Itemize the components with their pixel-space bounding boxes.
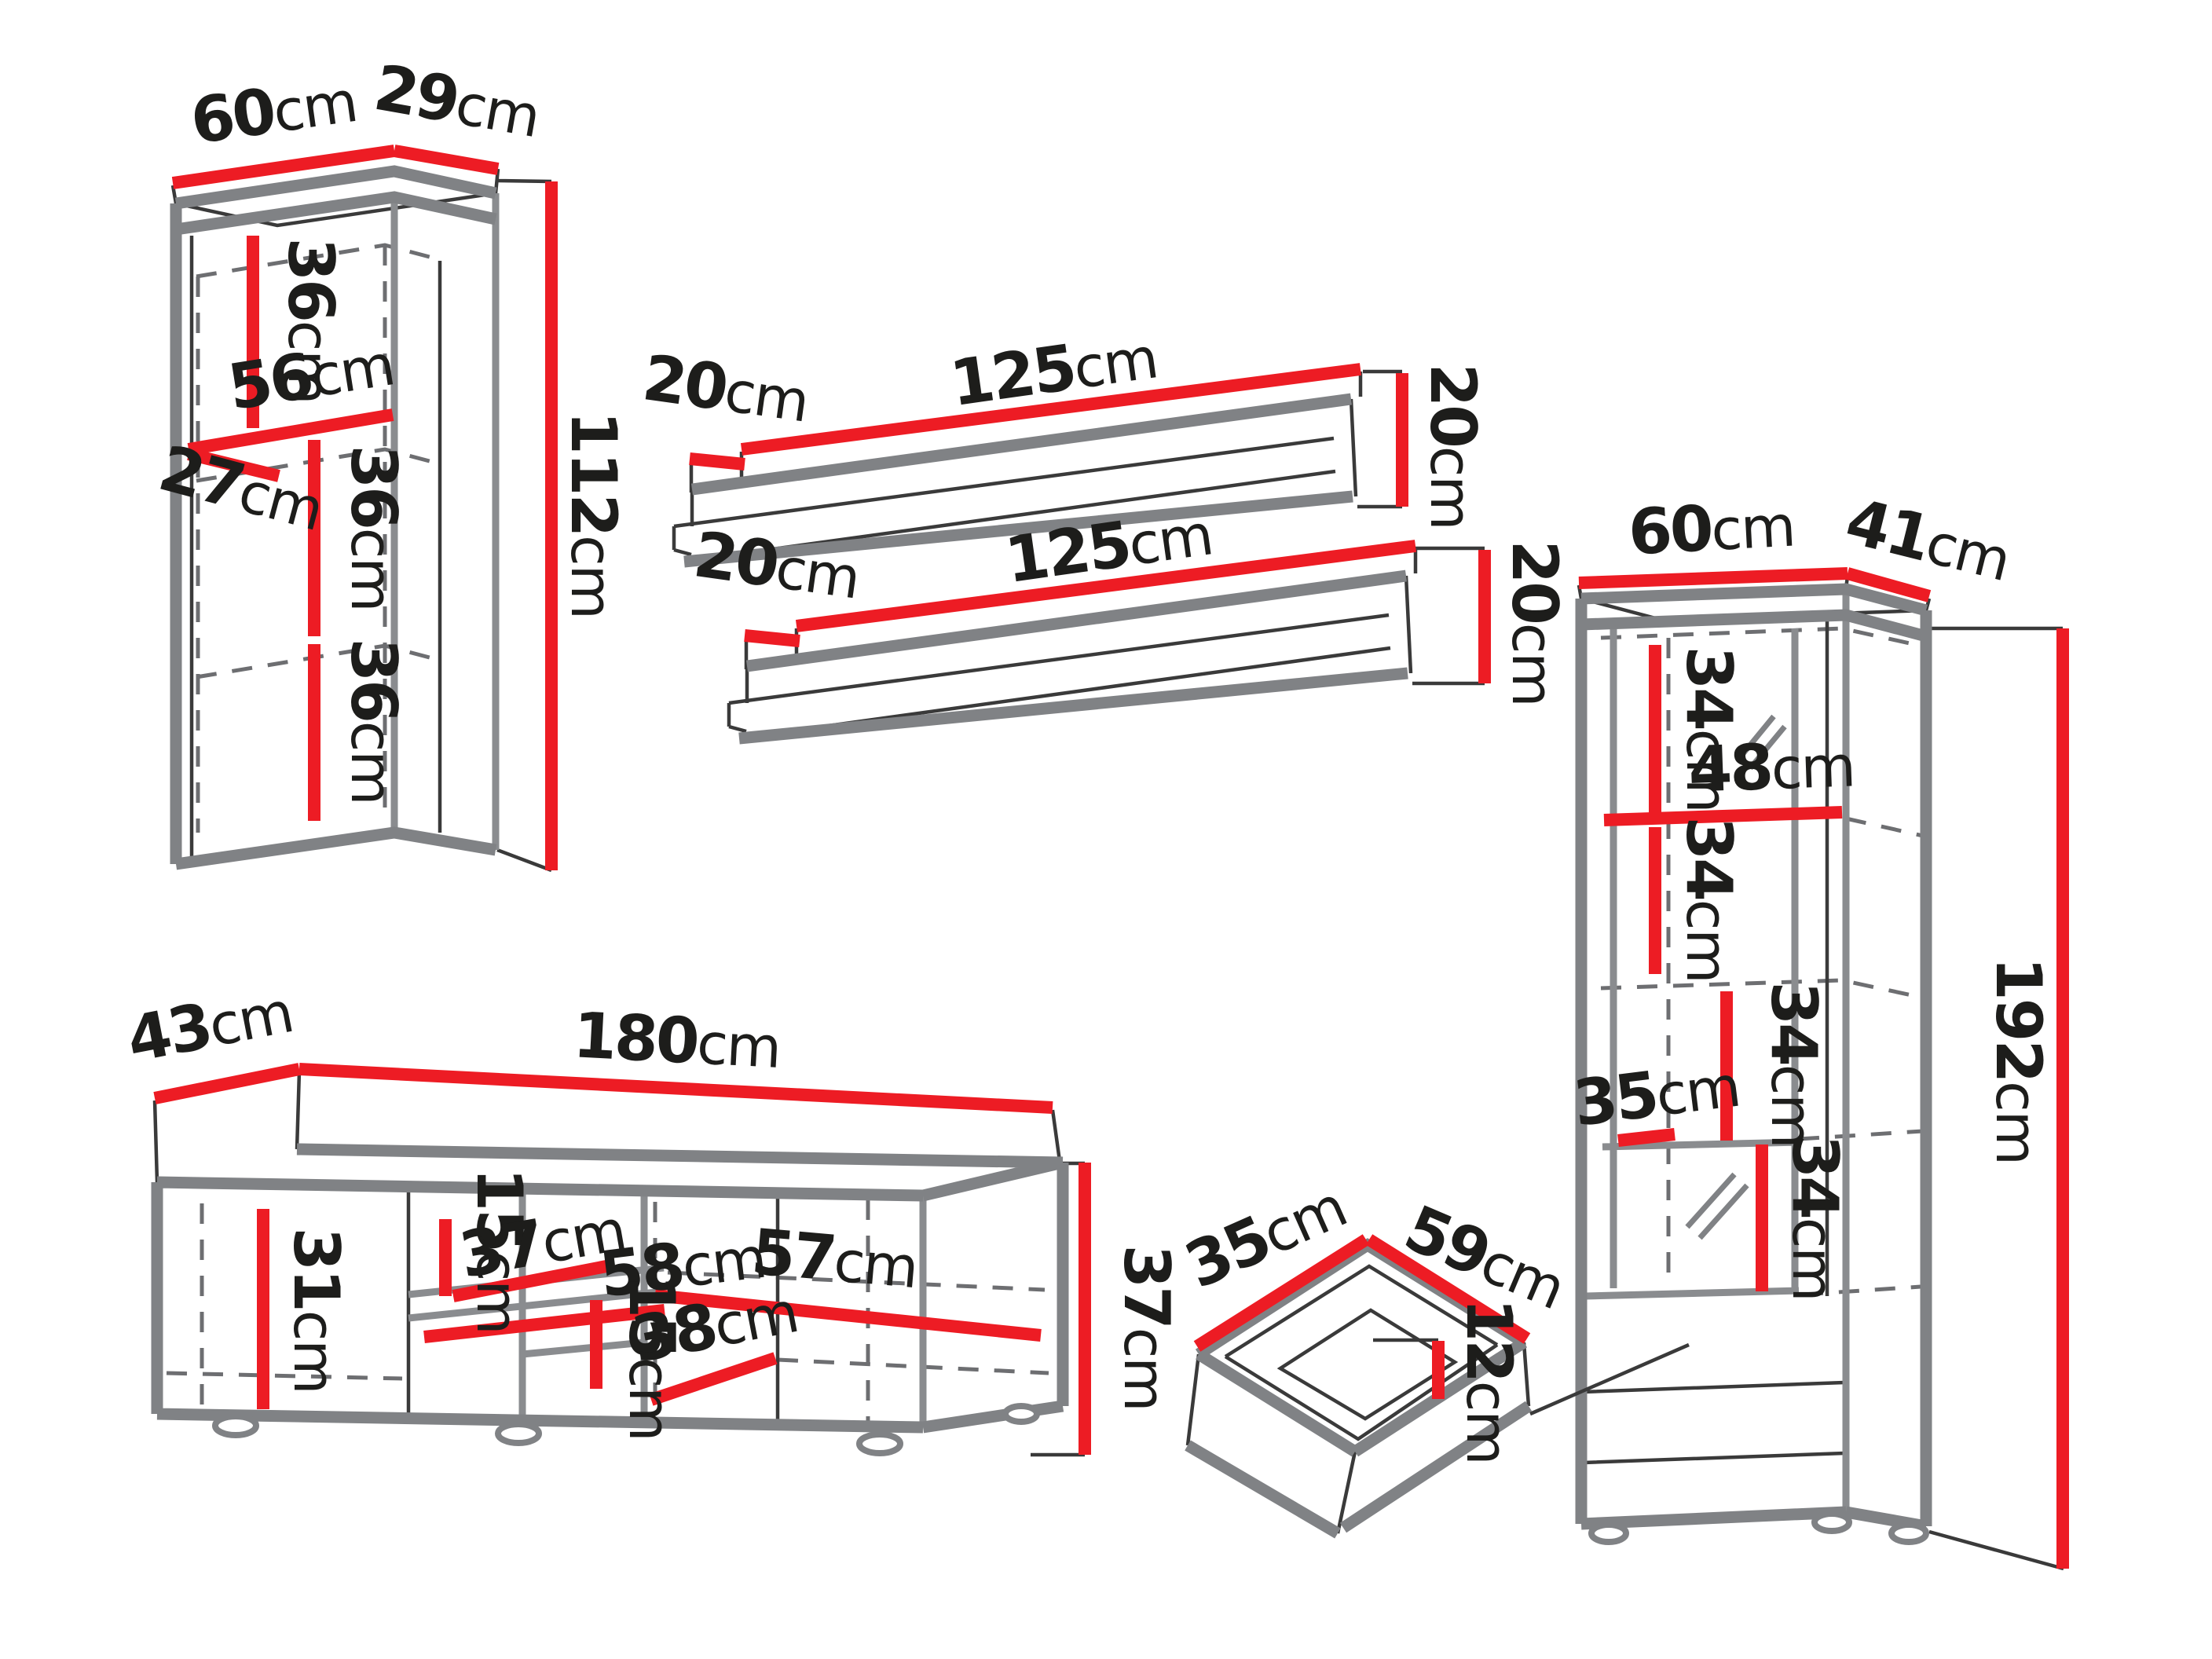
display-cabinet-shelf-width-label: 48cm (1687, 727, 1855, 806)
diagram-canvas: 60cm 29cm 36cm 56cm 27cm 36cm 36cm 112cm… (0, 0, 2212, 1659)
wall-shelf-lower-figure: 125cm 20cm 20cm (690, 496, 1571, 738)
display-cabinet-figure: 60cm 41cm 34cm 48cm 34cm 34cm 35cm 34cm … (1569, 485, 2064, 1569)
tv-stand-foot (1005, 1406, 1037, 1422)
wall-cabinet-middle-section-label: 36cm (337, 445, 410, 610)
display-cabinet-height-label: 192cm (1982, 957, 2055, 1164)
wall-cabinet-figure: 60cm 29cm 36cm 56cm 27cm 36cm 36cm 112cm (152, 51, 630, 870)
wall-cabinet-depth-label: 29cm (369, 51, 545, 152)
tv-stand-height-label: 37cm (1110, 1244, 1183, 1410)
tv-stand-left-section-label: 31cm (280, 1227, 353, 1393)
shelf-upper-height-label: 20cm (1416, 363, 1489, 529)
furniture-dimensions-diagram: { "colors": { "dimension_line_red": "#ed… (0, 0, 2212, 1659)
tv-stand-foot (215, 1416, 256, 1435)
display-cabinet-inner-depth-label: 35cm (1569, 1048, 1743, 1141)
wall-cabinet-height-label: 112cm (557, 411, 630, 618)
display-cabinet-foot (1892, 1525, 1926, 1542)
display-cabinet-section4-label: 34cm (1778, 1134, 1851, 1300)
tv-stand-width-label: 180cm (571, 998, 782, 1082)
tv-stand-foot (498, 1424, 539, 1443)
shelf-lower-depth-label: 20cm (690, 518, 864, 613)
tv-stand-foot (859, 1434, 900, 1453)
drawer-depth-label: 35cm (1174, 1168, 1356, 1302)
display-cabinet-foot (1815, 1514, 1849, 1531)
display-cabinet-foot (1591, 1525, 1626, 1542)
tv-stand-figure: 43cm 180cm 31cm 15cm 37cm 58cm 57cm 15cm… (121, 973, 1183, 1455)
shelf-lower-height-label: 20cm (1498, 540, 1571, 705)
wall-cabinet-bottom-section-label: 36cm (337, 638, 410, 804)
display-cabinet-section2-label: 34cm (1672, 816, 1745, 982)
display-cabinet-section3-label: 34cm (1757, 981, 1830, 1147)
display-cabinet-width-label: 60cm (1627, 488, 1796, 569)
shelf-upper-depth-label: 20cm (639, 341, 813, 436)
wall-cabinet-width-label: 60cm (186, 63, 361, 158)
tv-stand-depth-label: 43cm (121, 973, 298, 1077)
drawer-height-label: 12cm (1452, 1298, 1525, 1463)
